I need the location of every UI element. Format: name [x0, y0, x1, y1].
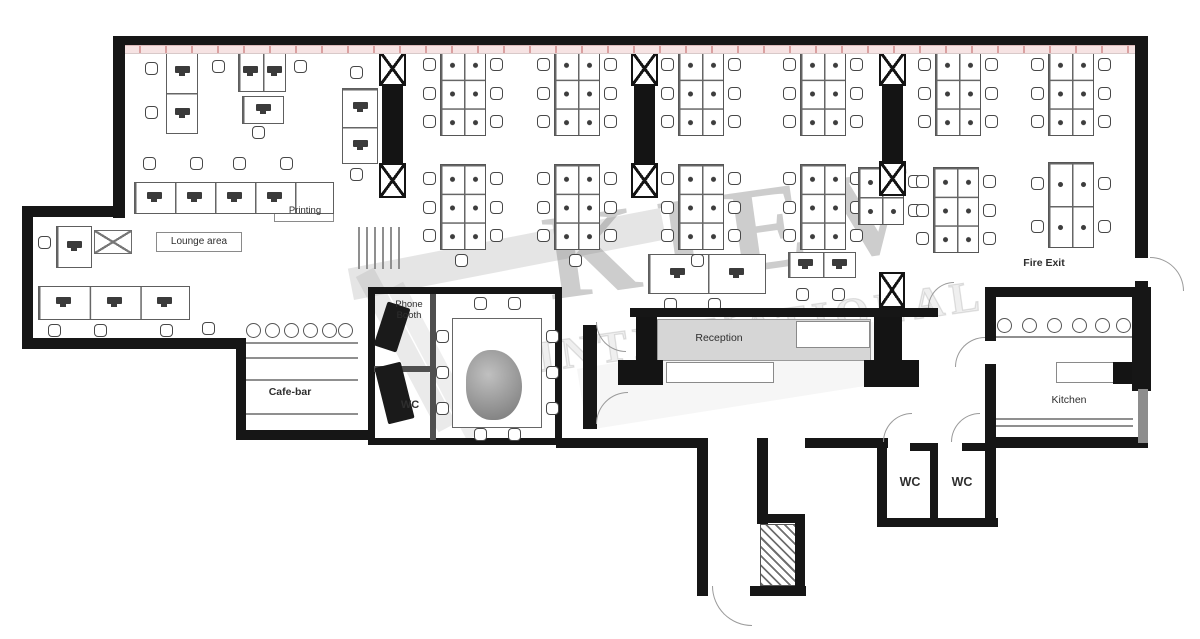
- chair: [537, 201, 550, 214]
- chair: [728, 87, 741, 100]
- desk-cluster: [800, 50, 846, 136]
- chair: [423, 115, 436, 128]
- chair: [728, 115, 741, 128]
- chair: [728, 229, 741, 242]
- desk-row: [648, 254, 766, 294]
- chair: [160, 324, 173, 337]
- chair: [728, 58, 741, 71]
- table-centerpiece: [466, 350, 522, 420]
- wall: [985, 364, 996, 444]
- wall: [22, 206, 33, 349]
- room-label-wc-1: WC: [890, 475, 930, 489]
- column-xbox: [379, 163, 406, 198]
- column-xbox: [631, 163, 658, 198]
- chair: [537, 115, 550, 128]
- monitor: [107, 297, 122, 304]
- kitchen-counter: [1056, 362, 1116, 383]
- chair: [546, 402, 559, 415]
- chair: [850, 58, 863, 71]
- room-label-wc-2: WC: [942, 475, 982, 489]
- detail-line: [390, 227, 392, 269]
- chair: [783, 58, 796, 71]
- wall: [1132, 287, 1151, 391]
- chair: [436, 366, 449, 379]
- chair: [233, 157, 246, 170]
- chair: [294, 60, 307, 73]
- chair: [850, 115, 863, 128]
- wall: [22, 206, 125, 217]
- detail-line: [366, 227, 368, 269]
- door-arc: [1150, 257, 1184, 291]
- desk-cluster: [440, 50, 486, 136]
- bar-stool: [303, 323, 318, 338]
- chair: [537, 172, 550, 185]
- detail-line: [243, 413, 358, 415]
- detail-line: [398, 227, 400, 269]
- column-pillar: [864, 360, 919, 387]
- column-xbox: [631, 51, 658, 86]
- chair: [728, 172, 741, 185]
- chair: [604, 87, 617, 100]
- wall: [750, 586, 806, 596]
- waiting-bench: [796, 321, 870, 348]
- monitor: [175, 66, 190, 73]
- detail-line: [358, 227, 360, 269]
- monitor: [353, 102, 368, 109]
- chair: [490, 87, 503, 100]
- monitor: [832, 259, 847, 266]
- chair: [546, 366, 559, 379]
- monitor: [187, 192, 202, 199]
- chair: [604, 201, 617, 214]
- room-label-reception: Reception: [680, 332, 758, 344]
- chair: [94, 324, 107, 337]
- chair: [436, 402, 449, 415]
- detail-line: [243, 357, 358, 359]
- chair: [202, 322, 215, 335]
- chair: [604, 229, 617, 242]
- chair: [212, 60, 225, 73]
- wall: [930, 443, 938, 526]
- chair: [916, 175, 929, 188]
- chair: [661, 229, 674, 242]
- chair: [661, 172, 674, 185]
- bar-stool: [338, 323, 353, 338]
- door-arc: [712, 586, 752, 626]
- chair: [190, 157, 203, 170]
- column-pillar: [618, 360, 663, 385]
- column-pillar: [382, 86, 403, 164]
- detail-line: [996, 336, 1133, 338]
- chair: [1031, 87, 1044, 100]
- bar-stool: [1047, 318, 1062, 333]
- detail-line: [243, 342, 358, 344]
- reception-counter: [666, 362, 774, 383]
- desk-row: [166, 50, 198, 134]
- chair: [783, 229, 796, 242]
- column-pillar: [636, 315, 657, 363]
- column-xbox: [879, 272, 905, 308]
- chair: [1031, 58, 1044, 71]
- chair: [48, 324, 61, 337]
- chair: [983, 232, 996, 245]
- chair: [783, 172, 796, 185]
- chair: [350, 66, 363, 79]
- chair: [604, 115, 617, 128]
- column-xbox: [879, 161, 906, 196]
- chair: [423, 229, 436, 242]
- folding-table: [94, 230, 132, 254]
- chair: [280, 157, 293, 170]
- monitor: [147, 192, 162, 199]
- chair: [918, 115, 931, 128]
- detail-line: [996, 418, 1133, 420]
- chair: [661, 115, 674, 128]
- desk-cluster: [1048, 162, 1094, 248]
- chair: [546, 330, 559, 343]
- room-label-printing: Printing: [277, 206, 333, 217]
- monitor: [56, 297, 71, 304]
- chair: [490, 229, 503, 242]
- chair: [252, 126, 265, 139]
- door-arc: [955, 337, 985, 367]
- bar-stool: [1022, 318, 1037, 333]
- wall: [583, 325, 597, 429]
- door-arc: [883, 413, 912, 442]
- chair: [537, 87, 550, 100]
- wall: [113, 36, 1148, 45]
- room-label-kitchen: Kitchen: [1040, 394, 1098, 406]
- monitor: [243, 66, 258, 73]
- desk-cluster: [800, 164, 846, 250]
- chair: [537, 58, 550, 71]
- chair: [508, 428, 521, 441]
- chair: [832, 288, 845, 301]
- wall: [113, 36, 125, 218]
- monitor: [729, 268, 744, 275]
- shaft-hatch: [760, 524, 796, 586]
- chair: [143, 157, 156, 170]
- chair: [783, 115, 796, 128]
- wall: [985, 287, 1148, 297]
- column-pillar: [634, 86, 655, 164]
- room-label-cafe-bar: Cafe-bar: [248, 386, 332, 398]
- chair: [1098, 220, 1111, 233]
- monitor: [267, 192, 282, 199]
- chair: [916, 204, 929, 217]
- chair: [350, 168, 363, 181]
- door-arc: [951, 413, 980, 442]
- chair: [918, 87, 931, 100]
- detail-line: [382, 227, 384, 269]
- monitor: [353, 140, 368, 147]
- chair: [604, 58, 617, 71]
- room-label-fire-exit: Fire Exit: [1012, 257, 1076, 269]
- desk-cluster: [678, 50, 724, 136]
- wall: [630, 308, 938, 317]
- desk-cluster: [935, 50, 981, 136]
- monitor: [157, 297, 172, 304]
- chair: [145, 106, 158, 119]
- chair: [490, 58, 503, 71]
- chair: [490, 115, 503, 128]
- wall: [877, 438, 887, 526]
- wall: [805, 438, 888, 448]
- chair: [985, 87, 998, 100]
- chair: [916, 232, 929, 245]
- chair: [490, 201, 503, 214]
- chair: [604, 172, 617, 185]
- chair: [850, 229, 863, 242]
- monitor: [227, 192, 242, 199]
- monitor: [798, 259, 813, 266]
- desk-cluster: [554, 164, 600, 250]
- chair: [661, 201, 674, 214]
- chair: [1031, 115, 1044, 128]
- chair: [1098, 87, 1111, 100]
- wall: [795, 514, 805, 596]
- column-pillar: [874, 316, 902, 362]
- chair: [985, 58, 998, 71]
- desk-row: [342, 88, 378, 164]
- chair: [423, 58, 436, 71]
- wall: [697, 438, 708, 596]
- desk-cluster: [440, 164, 486, 250]
- chair: [985, 115, 998, 128]
- chair: [850, 87, 863, 100]
- chair: [436, 330, 449, 343]
- chair: [508, 297, 521, 310]
- wall: [985, 438, 996, 526]
- wall: [556, 438, 708, 448]
- chair: [783, 87, 796, 100]
- chair: [661, 87, 674, 100]
- chair: [796, 288, 809, 301]
- wall: [985, 437, 1148, 448]
- chair: [983, 175, 996, 188]
- detail-line: [243, 379, 358, 381]
- chair: [569, 254, 582, 267]
- chair: [1098, 58, 1111, 71]
- chair: [728, 201, 741, 214]
- monitor: [175, 108, 190, 115]
- chair: [38, 236, 51, 249]
- bar-stool: [1072, 318, 1087, 333]
- chair: [455, 254, 468, 267]
- room-label-lounge: Lounge area: [158, 236, 240, 248]
- bar-stool: [246, 323, 261, 338]
- chair: [1098, 177, 1111, 190]
- desk-cluster: [933, 167, 979, 253]
- bar-stool: [322, 323, 337, 338]
- bar-stool: [997, 318, 1012, 333]
- monitor: [67, 241, 82, 248]
- wall: [1138, 389, 1148, 443]
- wall: [1135, 36, 1148, 258]
- monitor: [256, 104, 271, 111]
- chair: [474, 297, 487, 310]
- column-xbox: [379, 51, 406, 86]
- desk-cluster: [1048, 50, 1094, 136]
- chair: [537, 229, 550, 242]
- chair: [983, 204, 996, 217]
- wall: [757, 438, 768, 524]
- bar-stool: [284, 323, 299, 338]
- chair: [691, 254, 704, 267]
- bar-stool: [1116, 318, 1131, 333]
- chair: [1031, 177, 1044, 190]
- wall: [236, 430, 373, 440]
- chair: [918, 58, 931, 71]
- bar-stool: [1095, 318, 1110, 333]
- window-band: [113, 45, 1148, 54]
- floor-plan: KIEV INTERNATIONAL Printing Lounge area …: [0, 0, 1200, 639]
- wall: [22, 338, 246, 349]
- chair: [1098, 115, 1111, 128]
- chair: [490, 172, 503, 185]
- wall: [877, 518, 998, 527]
- chair: [661, 58, 674, 71]
- room-label-phone-booth: Phone Booth: [382, 300, 436, 322]
- chair: [1031, 220, 1044, 233]
- wall: [236, 338, 246, 440]
- detail-line: [996, 425, 1133, 427]
- desk-cluster: [554, 50, 600, 136]
- monitor: [670, 268, 685, 275]
- chair: [145, 62, 158, 75]
- bar-stool: [265, 323, 280, 338]
- chair: [423, 87, 436, 100]
- chair: [474, 428, 487, 441]
- wall: [1135, 281, 1148, 293]
- desk-cluster: [678, 164, 724, 250]
- chair: [783, 201, 796, 214]
- chair: [423, 201, 436, 214]
- monitor: [267, 66, 282, 73]
- column-pillar: [882, 86, 903, 164]
- chair: [423, 172, 436, 185]
- detail-line: [374, 227, 376, 269]
- column-xbox: [879, 51, 906, 86]
- room-label-wc-booth: WC: [390, 399, 430, 412]
